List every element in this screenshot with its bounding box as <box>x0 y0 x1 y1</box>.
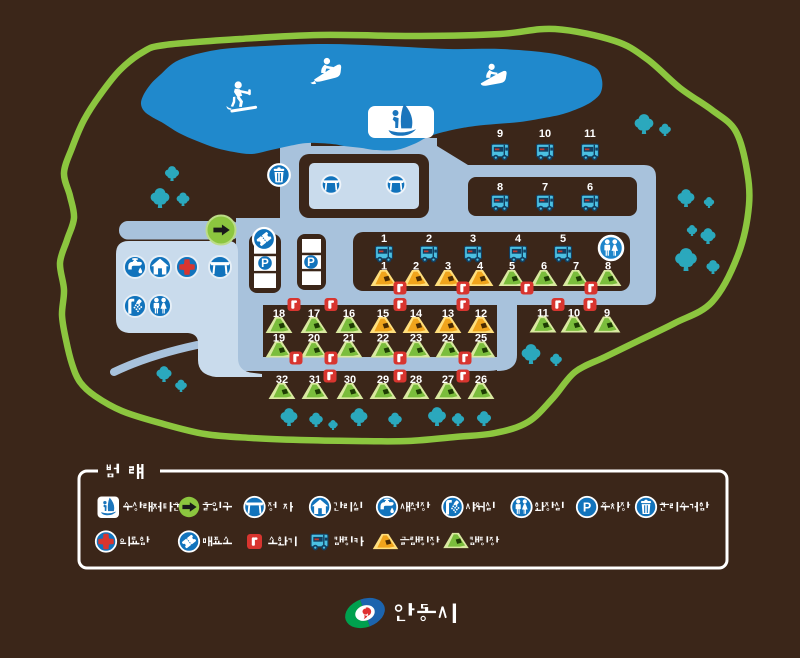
svg-text:2: 2 <box>426 233 432 245</box>
svg-text:7: 7 <box>542 182 548 194</box>
svg-text:8: 8 <box>497 182 503 194</box>
svg-text:6: 6 <box>587 182 593 194</box>
svg-text:3: 3 <box>470 233 476 245</box>
svg-text:10: 10 <box>539 128 551 140</box>
svg-text:5: 5 <box>560 233 566 245</box>
svg-text:P: P <box>583 500 591 514</box>
svg-text:9: 9 <box>497 128 503 140</box>
svg-text:4: 4 <box>515 233 522 245</box>
svg-text:P: P <box>261 258 269 270</box>
svg-text:11: 11 <box>584 128 596 140</box>
svg-text:1: 1 <box>381 233 387 245</box>
svg-text:P: P <box>307 257 315 269</box>
